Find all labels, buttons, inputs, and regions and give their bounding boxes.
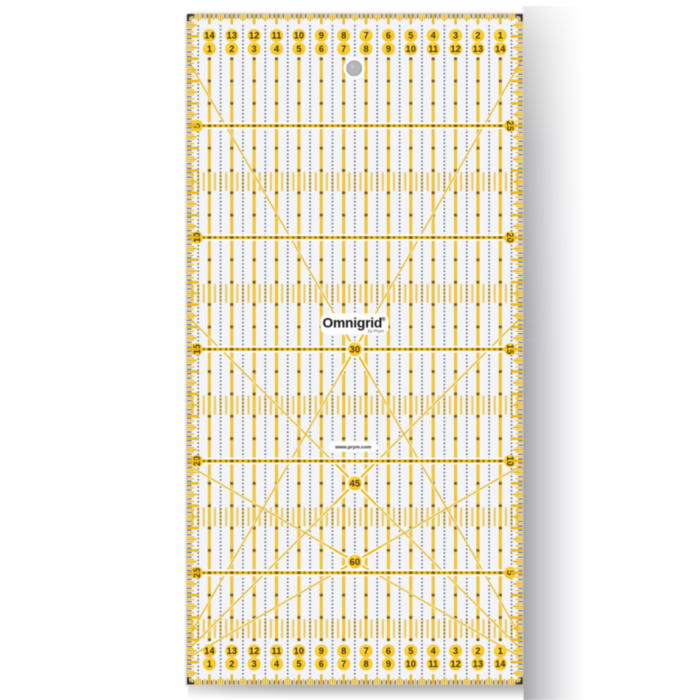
svg-text:9: 9 (319, 646, 324, 656)
svg-text:1: 1 (207, 44, 212, 54)
svg-text:3: 3 (252, 44, 257, 54)
svg-text:2: 2 (229, 44, 234, 54)
svg-text:2: 2 (475, 646, 480, 656)
svg-text:11: 11 (428, 44, 438, 54)
svg-text:1: 1 (498, 31, 503, 41)
svg-text:30: 30 (350, 344, 360, 355)
svg-text:9: 9 (386, 659, 391, 669)
svg-text:7: 7 (363, 31, 368, 41)
svg-text:7: 7 (341, 659, 346, 669)
svg-text:10: 10 (294, 31, 304, 41)
svg-text:®: ® (382, 316, 386, 323)
svg-text:9: 9 (386, 44, 391, 54)
svg-text:1: 1 (498, 646, 503, 656)
svg-text:10: 10 (406, 44, 416, 54)
svg-text:8: 8 (341, 646, 346, 656)
svg-text:6: 6 (319, 44, 324, 54)
svg-text:11: 11 (272, 646, 282, 656)
svg-text:5: 5 (408, 31, 413, 41)
svg-text:13: 13 (227, 646, 237, 656)
svg-text:7: 7 (341, 44, 346, 54)
svg-text:4: 4 (431, 646, 437, 656)
svg-text:6: 6 (386, 31, 391, 41)
svg-text:4: 4 (274, 44, 280, 54)
svg-text:3: 3 (252, 659, 257, 669)
svg-text:by Prym: by Prym (368, 328, 384, 333)
svg-text:4: 4 (274, 659, 280, 669)
svg-text:7: 7 (363, 646, 368, 656)
svg-text:9: 9 (319, 31, 324, 41)
svg-text:12: 12 (249, 646, 259, 656)
svg-text:8: 8 (363, 44, 368, 54)
svg-text:13: 13 (473, 659, 483, 669)
svg-text:5: 5 (296, 659, 301, 669)
svg-text:4: 4 (431, 31, 437, 41)
svg-text:11: 11 (428, 659, 438, 669)
svg-text:10: 10 (406, 659, 416, 669)
svg-text:45: 45 (350, 478, 360, 489)
svg-text:12: 12 (249, 31, 259, 41)
svg-text:14: 14 (204, 31, 215, 41)
svg-text:14: 14 (204, 646, 215, 656)
svg-text:60: 60 (350, 556, 360, 567)
svg-text:5: 5 (408, 646, 413, 656)
svg-text:2: 2 (475, 31, 480, 41)
svg-text:5: 5 (296, 44, 301, 54)
svg-text:13: 13 (227, 31, 237, 41)
svg-text:13: 13 (473, 44, 483, 54)
svg-text:6: 6 (386, 646, 391, 656)
svg-text:3: 3 (453, 646, 458, 656)
svg-text:14: 14 (495, 659, 506, 669)
svg-text:8: 8 (363, 659, 368, 669)
svg-text:11: 11 (272, 31, 282, 41)
svg-text:2: 2 (229, 659, 234, 669)
svg-text:6: 6 (319, 659, 324, 669)
svg-text:14: 14 (495, 44, 506, 54)
svg-text:12: 12 (450, 659, 460, 669)
svg-text:8: 8 (341, 31, 346, 41)
svg-text:12: 12 (450, 44, 460, 54)
svg-text:10: 10 (294, 646, 304, 656)
svg-text:www.prym.com: www.prym.com (334, 445, 372, 451)
svg-text:1: 1 (207, 659, 212, 669)
svg-text:3: 3 (453, 31, 458, 41)
